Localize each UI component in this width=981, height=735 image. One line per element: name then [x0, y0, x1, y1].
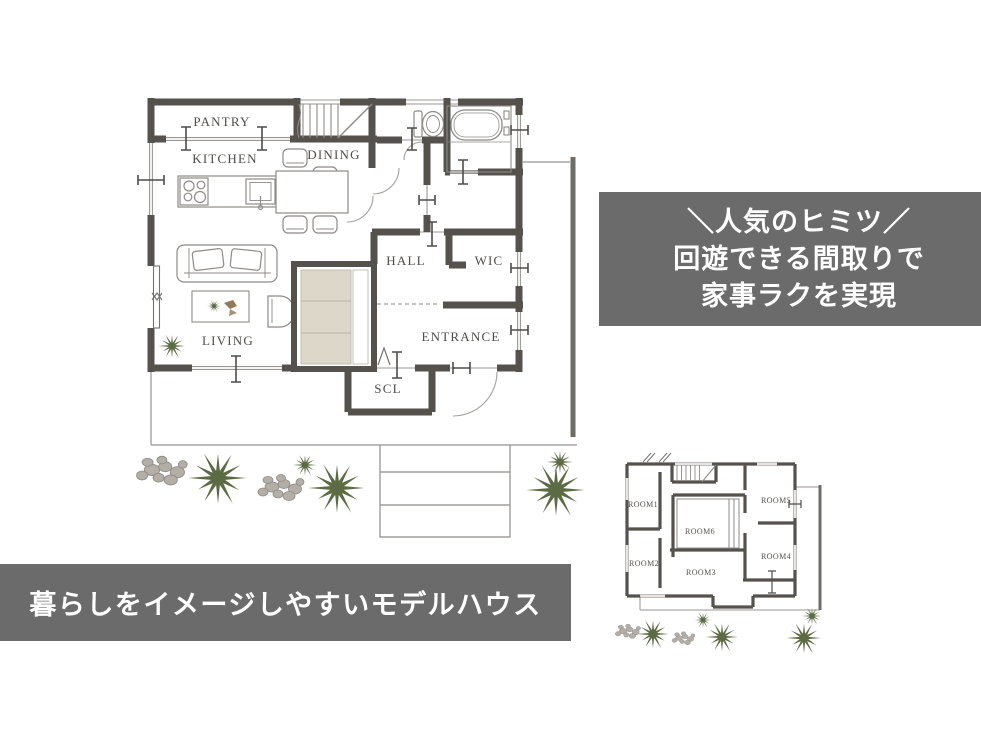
- stairs-box-icon: [294, 264, 374, 369]
- room-label-hall: HALL: [386, 253, 425, 268]
- info-line-1: ＼人気のヒミツ／: [669, 204, 929, 241]
- flyer-page: PANTRY KITCHEN DINING HALL WIC LIVING EN…: [0, 0, 981, 735]
- caption-text: 暮らしをイメージしやすいモデルハウス: [29, 583, 541, 622]
- plant-icon: [188, 453, 246, 503]
- hatch-marks: [643, 453, 671, 462]
- sofa-icon: [177, 245, 277, 282]
- plant-icon: [706, 623, 738, 651]
- entry-steps: [380, 445, 510, 537]
- folding-door-mark: [378, 348, 390, 365]
- room-label-dining: DINING: [307, 147, 360, 162]
- room-label-kitchen: KITCHEN: [192, 151, 257, 166]
- room-label-room2: ROOM2: [629, 559, 659, 568]
- info-box: ＼人気のヒミツ／ 回遊できる間取りで 家事ラクを実現: [599, 192, 981, 326]
- room-label-room6: ROOM6: [685, 527, 715, 536]
- room-label-room3: ROOM3: [686, 568, 716, 577]
- info-line-2: 回遊できる間取りで: [669, 241, 929, 278]
- garden-decorations-2f: [615, 608, 821, 653]
- window-mark-left: [152, 266, 162, 328]
- plant-icon: [308, 464, 364, 512]
- room-label-wic: WIC: [475, 253, 504, 268]
- room-label-room4: ROOM4: [761, 552, 791, 561]
- room-label-entrance: ENTRANCE: [422, 329, 501, 344]
- room-label-room1: ROOM1: [628, 500, 658, 509]
- plant-icon: [158, 335, 185, 358]
- room-label-scl: SCL: [374, 381, 401, 396]
- info-line-3: 家事ラクを実現: [669, 278, 929, 315]
- staircase-icon: [298, 104, 373, 138]
- second-floorplan: ROOM1 ROOM2 ROOM3 ROOM4 ROOM5 ROOM6: [615, 453, 821, 653]
- main-floorplan: PANTRY KITCHEN DINING HALL WIC LIVING EN…: [137, 98, 585, 537]
- plant-icon: [526, 465, 584, 515]
- coffee-table-icon: [192, 291, 249, 322]
- plant-icon: [547, 451, 573, 473]
- bed-icon: [677, 499, 739, 548]
- garden-decorations: [137, 451, 585, 516]
- room-label-pantry: PANTRY: [193, 114, 250, 129]
- rocks-icon: [137, 456, 188, 485]
- rocks-icon: [258, 475, 304, 501]
- plant-icon: [694, 613, 711, 628]
- room-label-living: LIVING: [202, 333, 254, 348]
- staircase-2f-icon: [677, 465, 716, 482]
- bathtub-icon: [447, 106, 511, 172]
- rocks-icon: [672, 632, 695, 645]
- caption-banner: 暮らしをイメージしやすいモデルハウス: [0, 564, 571, 641]
- plant-icon: [637, 620, 669, 648]
- toilet-icon: [414, 111, 444, 137]
- rocks-icon: [615, 624, 640, 638]
- plant-icon: [293, 455, 317, 476]
- plant-icon: [786, 623, 820, 653]
- armchair-icon: [268, 296, 294, 327]
- room-label-room5: ROOM5: [761, 496, 791, 505]
